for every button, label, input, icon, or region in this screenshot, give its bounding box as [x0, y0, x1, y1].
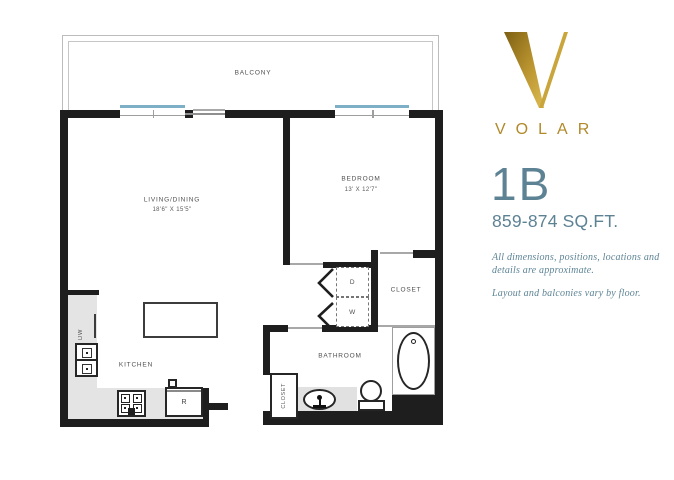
window-bedroom: [335, 105, 409, 118]
sink-basin: [82, 348, 92, 358]
wall-segment: [60, 110, 120, 118]
wall-closet-top: [413, 250, 443, 258]
disclaimer-line: details are approximate.: [492, 265, 594, 276]
floorplan-sheet: BALCONY: [0, 0, 674, 480]
wall-right: [435, 110, 443, 425]
sink-drain: [86, 352, 88, 354]
disclaimer-line: Layout and balconies vary by floor.: [492, 288, 641, 299]
wall-laundry-right: [371, 250, 378, 332]
dishwasher-line: [94, 314, 96, 338]
bathroom-label: BATHROOM: [318, 353, 361, 360]
wall-left: [60, 110, 68, 427]
volar-wordmark: VOLAR: [495, 121, 599, 139]
unit-name: 1B: [491, 161, 551, 207]
closet-opening: [380, 252, 413, 254]
washer-box: W: [336, 297, 369, 327]
volar-logo-v-icon: [504, 32, 568, 108]
refrigerator-top-line: [167, 390, 201, 392]
bedroom-closet-label: CLOSET: [391, 287, 422, 294]
sink-drain: [86, 368, 88, 370]
window-mullion-tick: [372, 110, 374, 118]
sink-divider: [77, 359, 96, 361]
burner: [133, 394, 142, 403]
burner: [121, 394, 130, 403]
balcony-door-line: [193, 109, 225, 111]
wall-tub-mass: [392, 395, 443, 413]
window-mullion-tick: [153, 110, 155, 118]
wall-entry-jamb: [209, 403, 228, 410]
kitchen-label: KITCHEN: [119, 362, 153, 369]
wall-bedroom: [283, 110, 290, 265]
bedroom-label: BEDROOM: [341, 176, 380, 183]
living-dining-label: LIVING/DINING: [144, 197, 200, 204]
washer-label: W: [349, 309, 356, 316]
bifold-doors-icon: [312, 264, 338, 332]
unit-area: 859-874 SQ.FT.: [492, 211, 618, 232]
dishwasher-label: DW: [78, 312, 84, 340]
kitchen-sink: [75, 343, 98, 377]
refrigerator-label: R: [181, 399, 186, 406]
kitchen-island: [143, 302, 218, 338]
dryer-box: D: [336, 267, 369, 297]
toilet-tank: [358, 400, 385, 411]
wall-bath-left: [263, 325, 270, 375]
sink-basin: [82, 364, 92, 374]
entry-closet: CLOSET: [270, 373, 298, 419]
balcony-door-line: [185, 113, 225, 115]
entry-closet-label: CLOSET: [281, 383, 287, 409]
balcony-label: BALCONY: [235, 70, 272, 77]
tub-drain-icon: [411, 339, 416, 344]
window-living: [120, 105, 185, 118]
bedroom-dims: 13' X 12'7": [345, 187, 378, 193]
disclaimer-line: All dimensions, positions, locations and: [492, 252, 659, 263]
faucet-icon: [313, 405, 326, 408]
dryer-label: D: [350, 279, 355, 286]
living-dining-dims: 18'6" X 15'5": [152, 207, 191, 213]
stove-control: [128, 408, 135, 415]
refrigerator: R: [165, 387, 203, 417]
toilet-bowl: [360, 380, 382, 402]
stove: [117, 390, 146, 417]
wall-segment: [225, 110, 335, 118]
